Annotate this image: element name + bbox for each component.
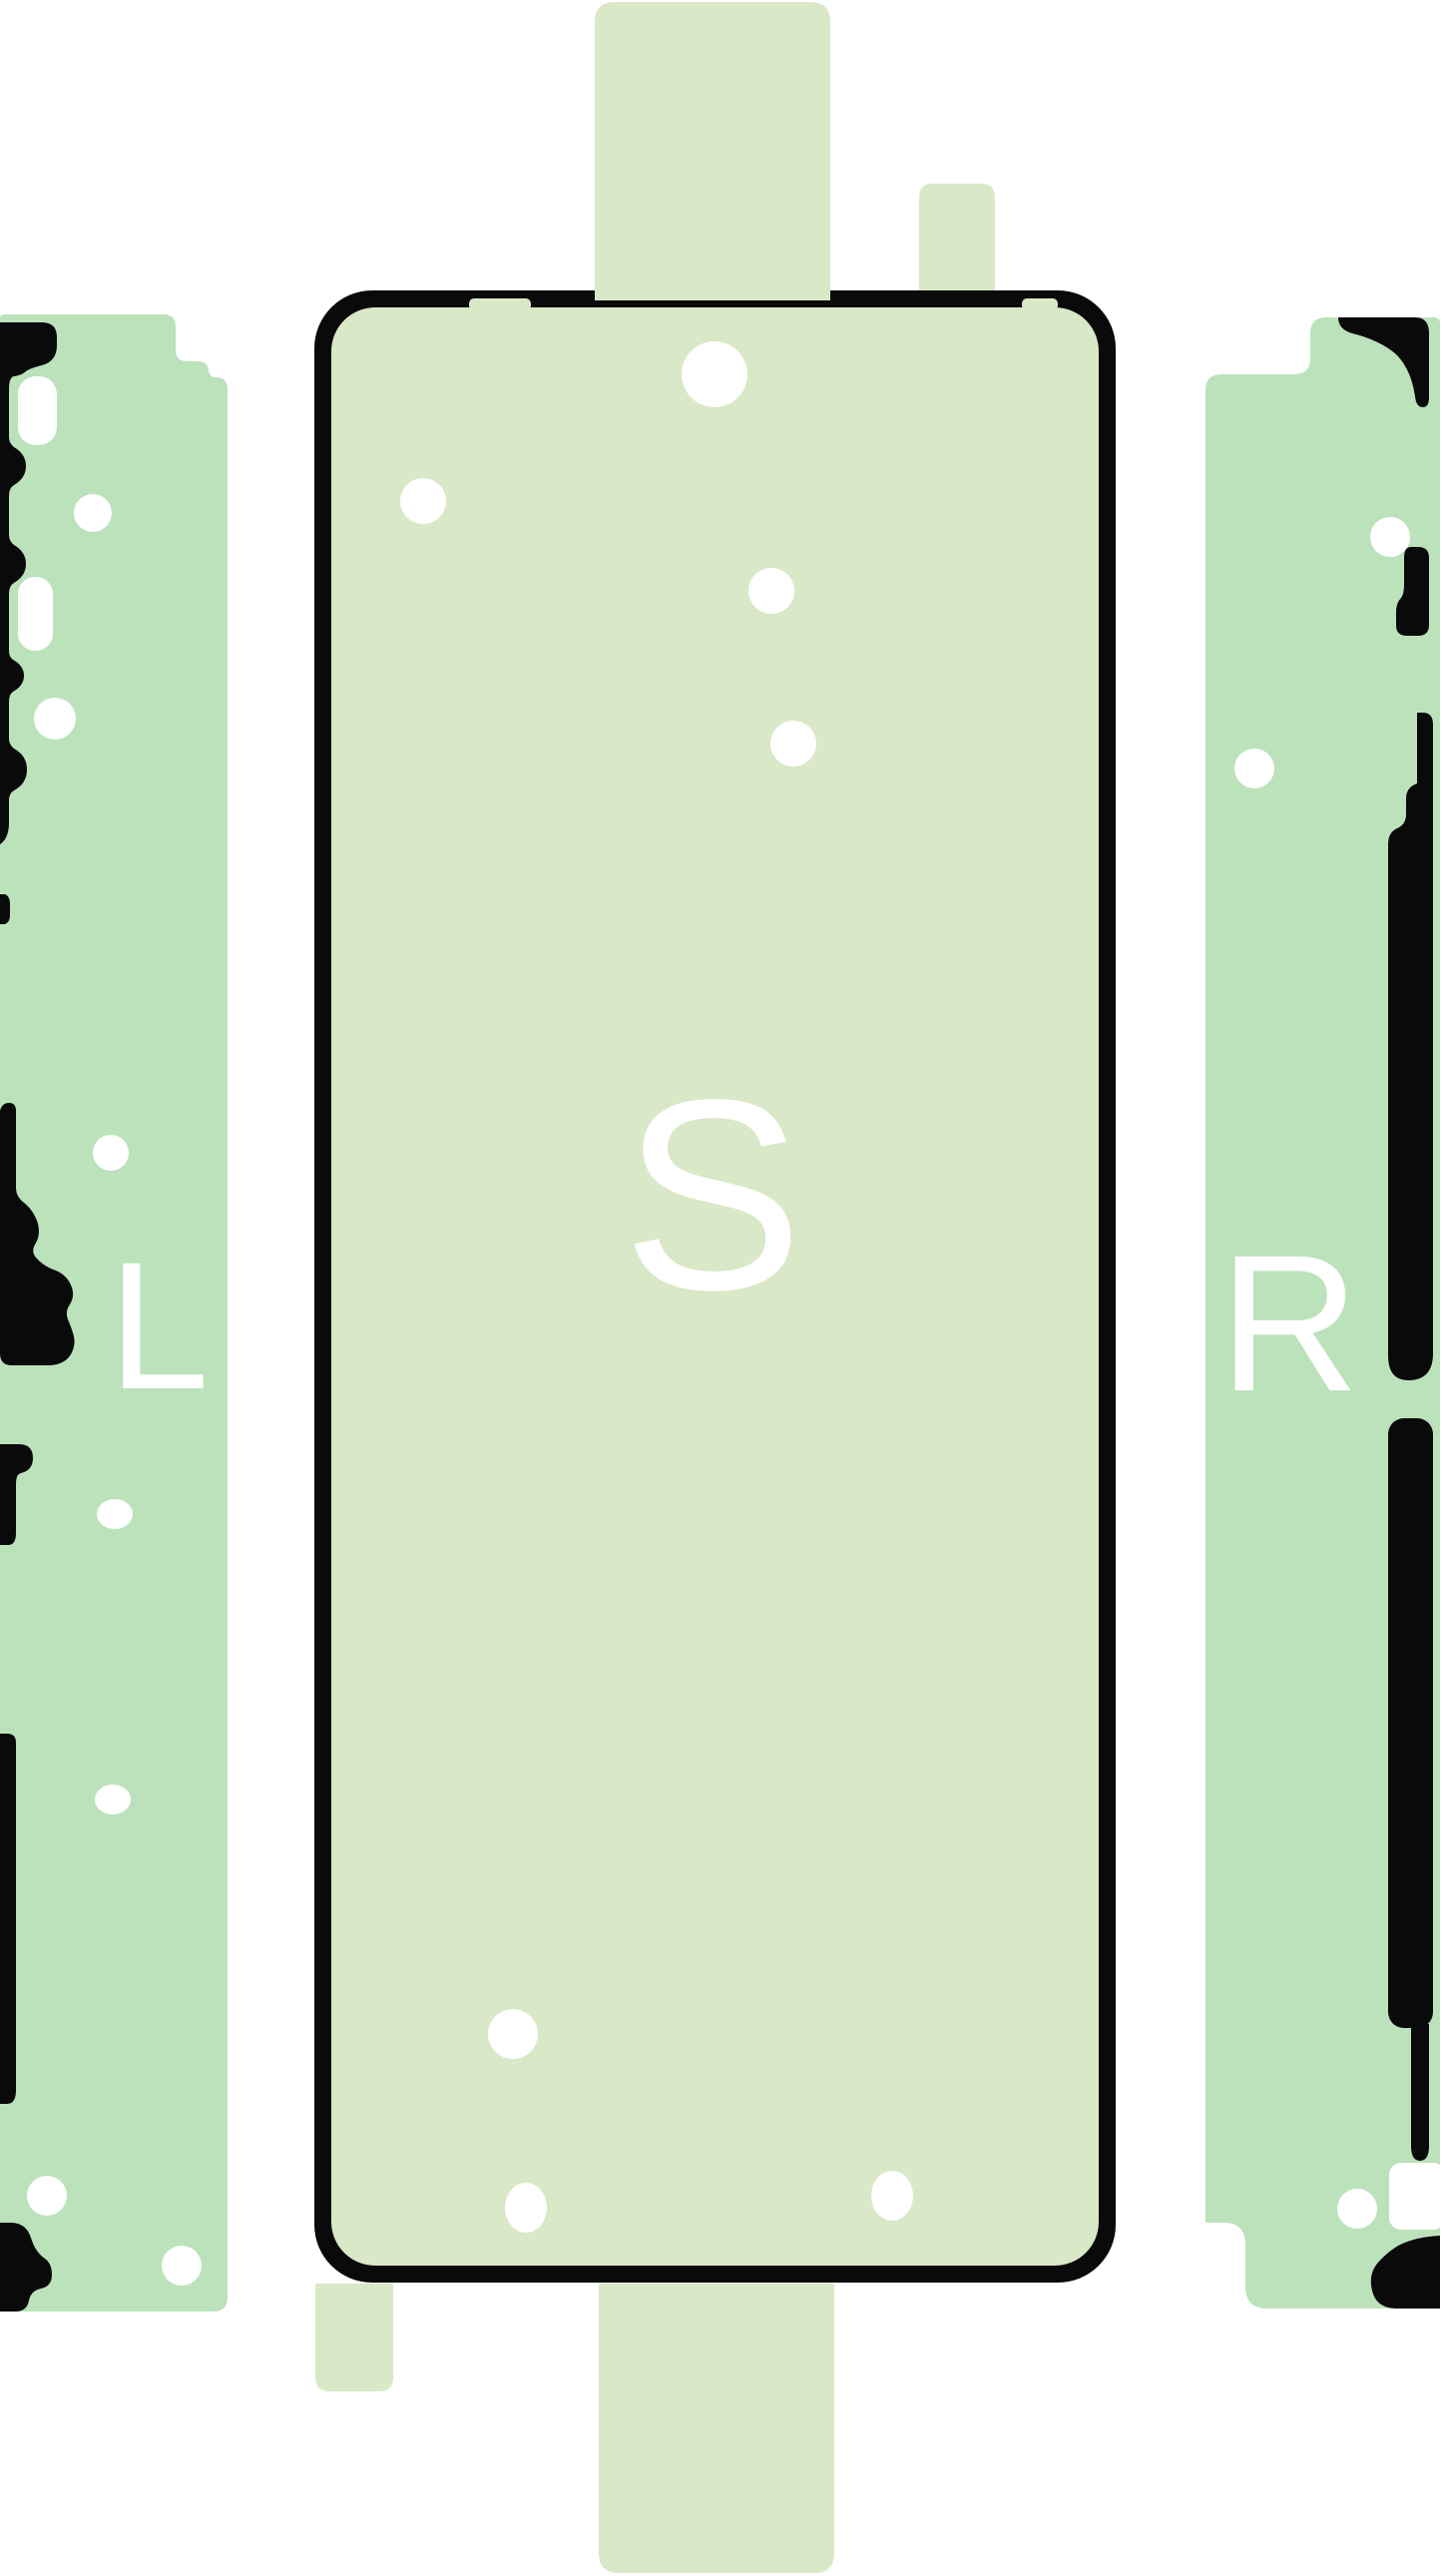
liner-tab-top-small — [919, 184, 995, 290]
left-strip-hole — [95, 1785, 131, 1814]
liner-tab-bottom-large — [599, 2284, 834, 2573]
diagram-canvas: L S — [0, 0, 1442, 2576]
center-sheet-hole — [400, 478, 446, 524]
right-strip-hole — [1337, 2189, 1377, 2229]
left-strip: L — [0, 314, 228, 2312]
left-strip-cut-tick — [0, 894, 10, 924]
left-strip-hole — [97, 1499, 133, 1529]
right-strip-hole — [1234, 749, 1274, 788]
center-sheet-hole — [770, 721, 816, 767]
center-sheet-notch — [469, 298, 531, 310]
left-strip-hole — [74, 494, 112, 532]
center-sheet-hole — [871, 2171, 913, 2221]
left-strip-cut-bar — [0, 1734, 16, 2104]
liner-tab-top-large — [595, 2, 830, 300]
liner-tab-bottom-small — [315, 2284, 393, 2391]
camera-hole — [682, 341, 747, 407]
right-strip-label: R — [1219, 1215, 1360, 1432]
left-strip-hole — [27, 2176, 67, 2216]
left-strip-hole — [162, 2246, 202, 2286]
left-strip-button-cutout — [18, 376, 57, 445]
center-sheet-hole — [488, 2009, 538, 2059]
left-strip-hole — [34, 698, 76, 740]
center-sheet-hole — [505, 2183, 547, 2233]
center-sheet-label: S — [622, 1043, 802, 1346]
right-strip: R — [1205, 317, 1442, 2309]
adhesive-sheet-diagram: L S — [0, 0, 1442, 2576]
center-sheet: S — [314, 2, 1116, 2573]
right-strip-edge-cutout — [1389, 2163, 1442, 2230]
right-strip-cut-bar-lower — [1388, 1418, 1433, 2028]
left-strip-hole — [93, 1135, 129, 1171]
right-strip-hole — [1370, 517, 1410, 557]
center-sheet-hole — [748, 568, 794, 614]
left-strip-label: L — [108, 1224, 209, 1427]
center-sheet-notch — [1022, 298, 1058, 310]
left-strip-button-cutout — [18, 577, 53, 651]
right-strip-cut-tail — [1411, 2024, 1429, 2161]
